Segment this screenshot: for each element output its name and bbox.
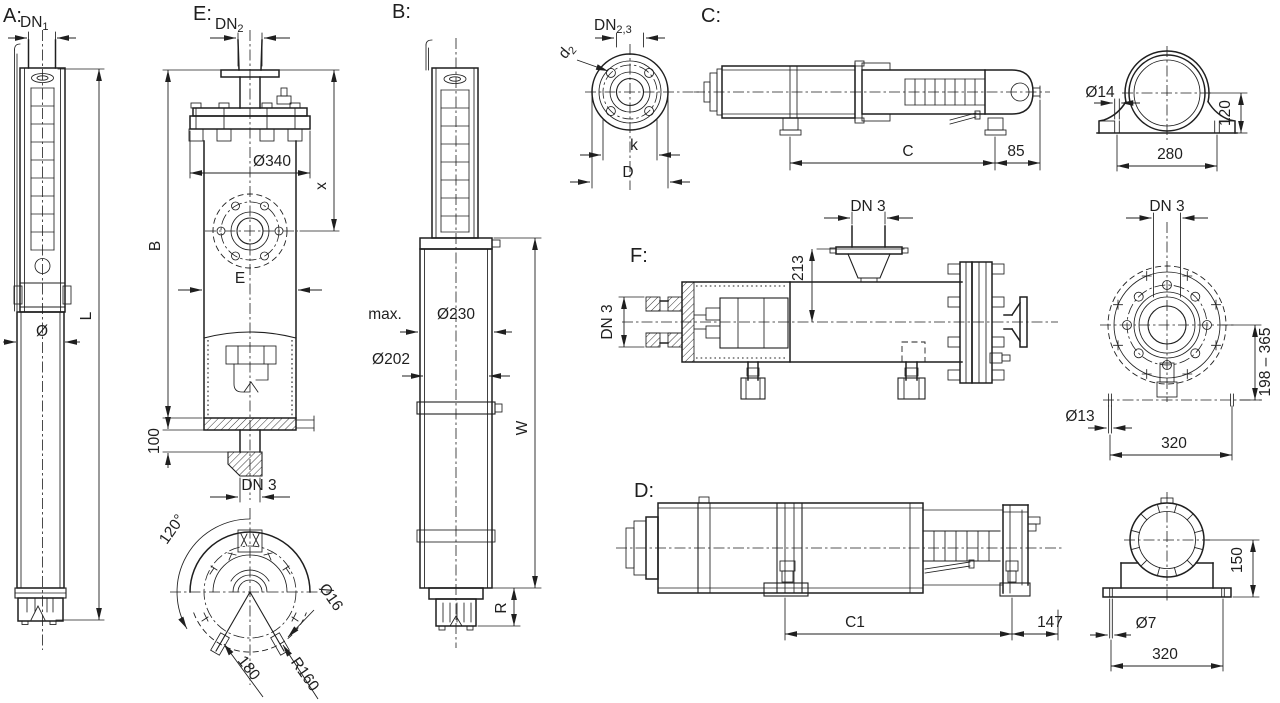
view-e-label: E: <box>193 3 212 25</box>
spacing-320-flange-label: 320 <box>1161 435 1187 452</box>
dia-label-a: Ø <box>36 323 48 340</box>
length-c1-label: C1 <box>845 614 865 631</box>
dia7-label: Ø7 <box>1136 615 1157 632</box>
outer-dia-d-label: D <box>622 164 633 181</box>
height-150-label: 150 <box>1229 547 1246 573</box>
dn3-left-label: DN 3 <box>599 304 616 339</box>
dim-x-label: x <box>313 182 330 190</box>
view-d-label: D: <box>634 480 654 502</box>
dia202-label: Ø202 <box>372 351 410 368</box>
dim-r-label: R <box>493 602 510 613</box>
view-b-label: B: <box>392 1 411 23</box>
technical-drawing-page: A: DN1 Ø L E: DN2 <box>0 0 1280 703</box>
height-213-label: 213 <box>790 255 807 281</box>
dn3-right-label: DN 3 <box>1149 198 1184 215</box>
max-label: max. <box>368 306 402 323</box>
dim-100-label: 100 <box>146 428 163 454</box>
drawing-background <box>0 0 1280 703</box>
view-f-label: F: <box>630 245 648 267</box>
dn3-top-label: DN 3 <box>850 198 885 215</box>
range-198-365-label: 198 – 365 <box>1257 328 1274 397</box>
spacing-280-label: 280 <box>1157 146 1183 163</box>
dia230-label: Ø230 <box>437 306 475 323</box>
bolt-circle-k-label: k <box>630 137 638 154</box>
length-l-label: L <box>78 311 95 320</box>
dn3-label-e: DN 3 <box>241 477 276 494</box>
dim-b-label: B <box>147 241 164 251</box>
width-w-label: W <box>514 420 531 435</box>
spacing-320-cradle-label: 320 <box>1152 646 1178 663</box>
dia13-label: Ø13 <box>1065 408 1094 425</box>
length-c-label: C <box>902 143 913 160</box>
offset-85-label: 85 <box>1007 143 1024 160</box>
dia14-label: Ø14 <box>1085 84 1115 101</box>
dim-e-label: E <box>235 270 245 287</box>
pump-dimension-drawing: A: DN1 Ø L E: DN2 <box>0 0 1280 703</box>
dia340-label: Ø340 <box>253 153 291 170</box>
view-c-label: C: <box>701 5 721 27</box>
offset-147-label: 147 <box>1037 614 1063 631</box>
height-120-label: 120 <box>1217 100 1234 126</box>
